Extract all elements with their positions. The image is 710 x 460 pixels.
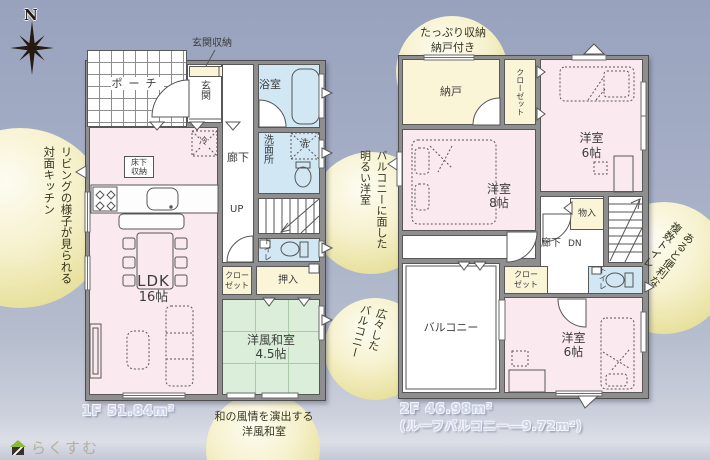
- monoire-label: 物入: [578, 209, 596, 220]
- bedroom-c-size-label: 6帖: [564, 345, 584, 359]
- floor2-area-sublabel: (ルーフバルコニー―9.72m²): [400, 417, 582, 434]
- washitsu-size-label: 4.5帖: [255, 347, 286, 361]
- underfloor-storage-box: 床下 収納: [124, 156, 154, 178]
- oshiire-label: 押入: [278, 275, 298, 287]
- corridor-2f-label: 廊下: [541, 238, 561, 250]
- toilet-2f-label: トイレ: [598, 266, 607, 290]
- bedroom-b-label: 洋室: [487, 182, 511, 196]
- closet-2f-top-label: クローゼット: [515, 68, 525, 116]
- compass-icon: [6, 20, 58, 76]
- washitsu-label: 洋風和室: [247, 333, 295, 347]
- room-bedroom-a: 洋室 6帖: [540, 59, 643, 192]
- ldk-size-label: 16帖: [139, 290, 169, 306]
- balcony-label: バルコニー: [424, 321, 479, 334]
- callout-nando-label: たっぷり収納 納戸付き: [398, 26, 508, 56]
- room-stairs-1f: [258, 198, 320, 234]
- room-porch: ポーチ: [87, 50, 187, 127]
- callout-bright-room-label: バルコニーに面した 明るい洋室: [356, 150, 389, 280]
- toilet-1f-label: トイレ: [263, 237, 272, 261]
- room-balcony: バルコニー: [402, 263, 500, 393]
- floor2-area-label: 2F 46.98m²: [400, 402, 493, 417]
- ldk-label: LDK: [137, 272, 170, 290]
- nando-label: 納戸: [440, 85, 462, 98]
- room-stairs-2f: [608, 196, 643, 263]
- room-hallway-2f-west: [402, 235, 536, 259]
- callout-washitsu-label: 和の風情を演出する 洋風和室: [206, 410, 322, 440]
- bedroom-a-size-label: 6帖: [582, 146, 602, 160]
- corridor-1f-label: 廊下: [227, 152, 249, 165]
- porch-label: ポーチ: [111, 77, 164, 90]
- floorplan-canvas: N ポーチ クロー ゼット 押入 洋風和室 4.5帖 LDK 16帖: [0, 0, 710, 460]
- floor1-area-label: 1F 51.84m²: [82, 404, 175, 419]
- room-closet-2f-top: クローゼット: [504, 59, 536, 125]
- room-closet-1f: クロー ゼット: [222, 266, 252, 295]
- room-oshiire: 押入: [256, 266, 320, 295]
- closet-1f-label: クロー ゼット: [225, 271, 249, 290]
- fridge-label: 冷: [199, 137, 208, 147]
- bathroom-label: 浴室: [259, 79, 281, 92]
- site-logo: らくすむ: [10, 437, 99, 458]
- genkan-storage-label: 玄関収納: [192, 38, 232, 50]
- room-nando: 納戸: [402, 59, 500, 125]
- room-closet-2f-bottom: クロー ゼット: [504, 266, 548, 294]
- compass-north-label: N: [24, 6, 38, 24]
- room-washitsu: 洋風和室 4.5帖: [222, 299, 320, 395]
- room-bathroom: [258, 64, 320, 128]
- bedroom-a-label: 洋室: [579, 131, 603, 145]
- washroom-label: 洗面所: [261, 134, 273, 164]
- bedroom-b-size-label: 8帖: [489, 196, 509, 210]
- dn-label: DN: [568, 239, 582, 249]
- washer-label: 洗: [300, 139, 309, 149]
- logo-house-icon: [10, 440, 26, 455]
- closet-2f-bottom-label: クロー ゼット: [514, 270, 538, 289]
- bedroom-c-label: 洋室: [561, 331, 585, 345]
- room-monoire: 物入: [570, 198, 604, 230]
- logo-text: らくすむ: [31, 437, 99, 458]
- genkan-label: 玄関: [198, 80, 210, 100]
- room-bedroom-b: 洋室 8帖: [402, 129, 536, 231]
- callout-kitchen-label: リビングの様子が見られる 対面キッチン: [40, 146, 75, 311]
- up-label: UP: [230, 204, 243, 216]
